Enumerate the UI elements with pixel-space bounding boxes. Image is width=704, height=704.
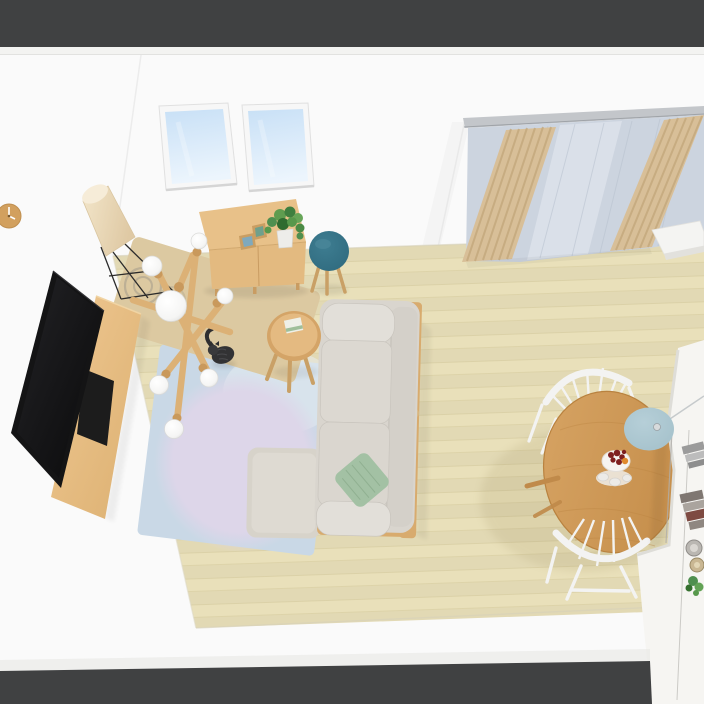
top-dark-band xyxy=(0,0,704,47)
skylight-left xyxy=(159,103,237,190)
room-render xyxy=(0,0,704,704)
sideboard-leg xyxy=(253,287,257,294)
ottoman xyxy=(246,447,322,538)
skylight-glass xyxy=(248,109,308,185)
cat-head xyxy=(208,345,218,355)
sofa-seat-cushion xyxy=(320,340,392,424)
ceiling-trim xyxy=(0,47,704,54)
plant-pot xyxy=(277,229,293,248)
picture-frame xyxy=(252,223,267,240)
sofa-armrest-bottom xyxy=(316,501,391,537)
stool xyxy=(309,231,349,295)
sofa-backrest xyxy=(385,307,418,528)
room-scene xyxy=(0,0,704,704)
sideboard xyxy=(199,199,308,298)
skylight-glass xyxy=(165,109,231,184)
pendant-disc xyxy=(624,408,674,451)
sideboard-leg xyxy=(296,283,300,290)
wall-clock xyxy=(0,204,21,228)
sofa-armrest-top xyxy=(322,303,395,344)
skylight-right xyxy=(242,103,314,191)
stool-seat xyxy=(309,231,349,271)
sofa xyxy=(314,299,422,539)
orange-slice xyxy=(622,458,628,464)
pendant-hub xyxy=(654,424,661,431)
